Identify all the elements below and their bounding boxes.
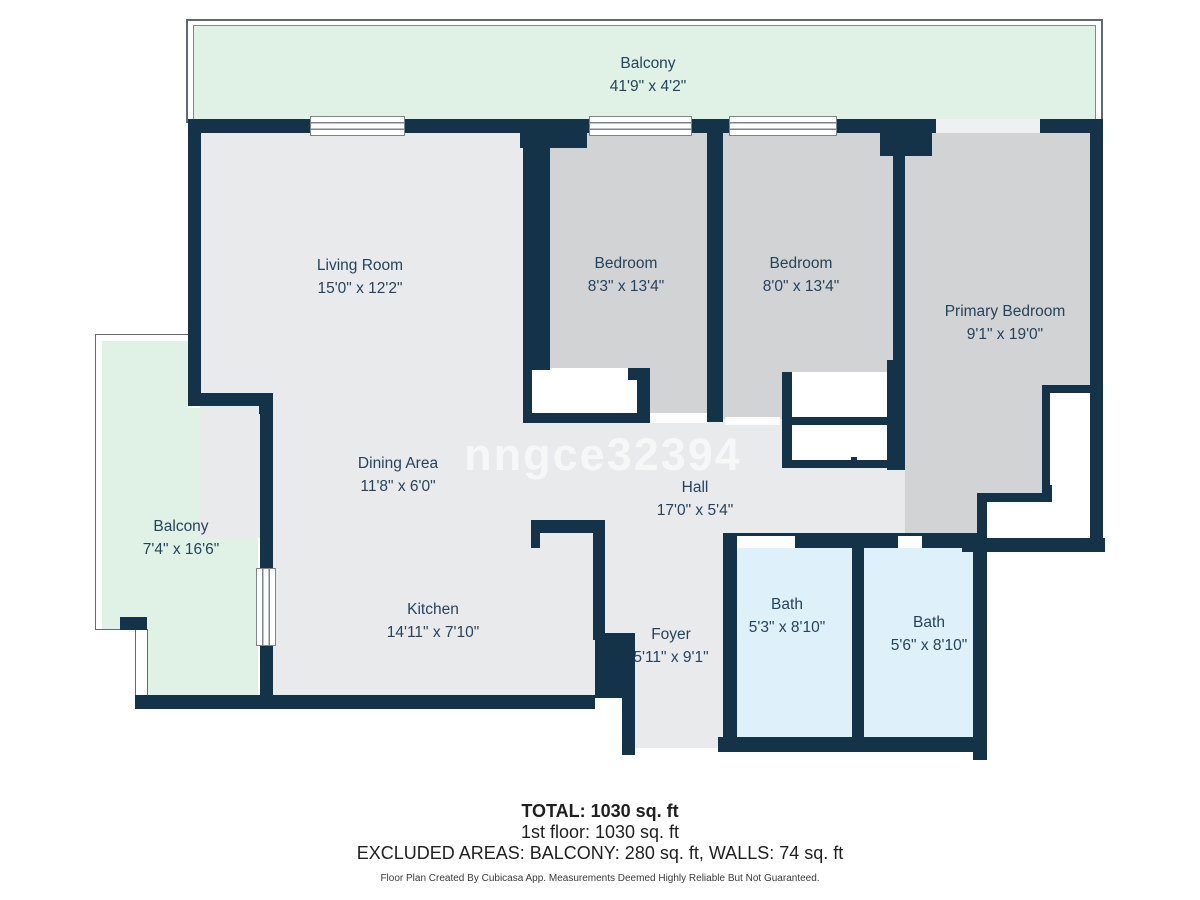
wall bbox=[977, 493, 1043, 502]
wall bbox=[880, 119, 932, 156]
primary-window-opening bbox=[936, 119, 1040, 133]
door-opening bbox=[725, 417, 780, 425]
balcony-left-railing bbox=[147, 629, 148, 697]
bath1-floor bbox=[737, 548, 852, 737]
wall bbox=[595, 633, 635, 698]
room-name: Dining Area bbox=[358, 452, 438, 475]
room-dims: 11'8" x 6'0" bbox=[358, 475, 438, 498]
wall bbox=[1042, 485, 1052, 502]
hall-floor bbox=[605, 533, 637, 645]
room-name: Living Room bbox=[317, 254, 403, 277]
wall bbox=[852, 548, 864, 738]
summary-excluded: EXCLUDED AREAS: BALCONY: 280 sq. ft, WAL… bbox=[0, 843, 1200, 864]
room-dims: 14'11" x 7'10" bbox=[387, 621, 479, 644]
room-label-primary-bedroom: Primary Bedroom 9'1" x 19'0" bbox=[945, 300, 1066, 346]
room-name: Bath bbox=[749, 593, 825, 616]
room-dims: 8'3" x 13'4" bbox=[588, 275, 664, 298]
room-dims: 5'11" x 9'1" bbox=[633, 646, 708, 669]
primary-vestibule bbox=[987, 502, 1093, 538]
room-dims: 8'0" x 13'4" bbox=[763, 275, 839, 298]
wall bbox=[523, 148, 550, 370]
wall bbox=[1090, 119, 1103, 552]
room-label-foyer: Foyer 5'11" x 9'1" bbox=[633, 623, 708, 669]
room-dims: 5'3" x 8'10" bbox=[749, 616, 825, 639]
wall bbox=[260, 406, 273, 572]
wall bbox=[593, 520, 605, 640]
summary-block: TOTAL: 1030 sq. ft 1st floor: 1030 sq. f… bbox=[0, 801, 1200, 885]
room-label-bedroom-1: Bedroom 8'3" x 13'4" bbox=[588, 252, 664, 298]
window bbox=[310, 116, 405, 136]
wall bbox=[622, 695, 635, 755]
wall bbox=[531, 520, 540, 548]
room-name: Foyer bbox=[633, 623, 708, 646]
room-label-bath-2: Bath 5'6" x 8'10" bbox=[891, 611, 967, 657]
room-label-dining-area: Dining Area 11'8" x 6'0" bbox=[358, 452, 438, 498]
room-label-hall: Hall 17'0" x 5'4" bbox=[657, 476, 733, 522]
wall bbox=[782, 417, 895, 425]
window bbox=[589, 116, 692, 136]
room-dims: 7'4" x 16'6" bbox=[143, 538, 219, 561]
wall bbox=[531, 520, 605, 533]
wall bbox=[135, 695, 595, 709]
wall bbox=[188, 119, 201, 397]
primary-closet-passage bbox=[1052, 485, 1093, 504]
room-label-bath-1: Bath 5'3" x 8'10" bbox=[749, 593, 825, 639]
wall bbox=[260, 642, 273, 697]
summary-disclaimer: Floor Plan Created By Cubicasa App. Meas… bbox=[0, 873, 1200, 885]
balcony-left-railing bbox=[135, 629, 136, 697]
wall bbox=[120, 617, 147, 630]
floor-plan: Balcony 41'9" x 4'2" Living Room 15'0" x… bbox=[0, 0, 1200, 900]
window bbox=[729, 116, 837, 136]
wall bbox=[782, 460, 895, 468]
room-label-kitchen: Kitchen 14'11" x 7'10" bbox=[387, 598, 479, 644]
door-opening bbox=[737, 536, 795, 548]
balcony-left-railing bbox=[95, 334, 96, 630]
watermark: nngce32394 bbox=[464, 429, 742, 481]
room-name: Bedroom bbox=[763, 252, 839, 275]
primary-closet bbox=[1050, 393, 1090, 488]
bedroom1-closet bbox=[532, 368, 637, 413]
wall bbox=[1042, 385, 1050, 497]
room-dims: 17'0" x 5'4" bbox=[657, 499, 733, 522]
door-opening bbox=[650, 413, 707, 423]
room-name: Balcony bbox=[143, 515, 219, 538]
wall bbox=[707, 119, 723, 422]
wall bbox=[520, 119, 587, 148]
bedroom2-floor bbox=[723, 373, 782, 419]
door-opening bbox=[898, 536, 922, 548]
wall bbox=[851, 457, 857, 468]
room-name: Bath bbox=[891, 611, 967, 634]
room-name: Balcony bbox=[610, 52, 686, 75]
bedroom2-closet-upper bbox=[792, 372, 887, 417]
room-name: Bedroom bbox=[588, 252, 664, 275]
wall bbox=[887, 360, 900, 470]
summary-total: TOTAL: 1030 sq. ft bbox=[0, 801, 1200, 822]
room-label-bedroom-2: Bedroom 8'0" x 13'4" bbox=[763, 252, 839, 298]
wall bbox=[628, 368, 647, 380]
room-dims: 5'6" x 8'10" bbox=[891, 634, 967, 657]
wall bbox=[723, 548, 737, 738]
room-dims: 15'0" x 12'2" bbox=[317, 277, 403, 300]
balcony-left-railing bbox=[95, 334, 189, 335]
room-name: Kitchen bbox=[387, 598, 479, 621]
bedroom2-closet-lower bbox=[792, 425, 887, 460]
window bbox=[256, 568, 276, 646]
wall bbox=[523, 413, 650, 423]
wall bbox=[718, 737, 987, 752]
wall bbox=[973, 538, 987, 760]
room-label-balcony-left: Balcony 7'4" x 16'6" bbox=[143, 515, 219, 561]
room-name: Primary Bedroom bbox=[945, 300, 1066, 323]
room-label-living-room: Living Room 15'0" x 12'2" bbox=[317, 254, 403, 300]
room-dims: 41'9" x 4'2" bbox=[610, 75, 686, 98]
room-label-balcony-top: Balcony 41'9" x 4'2" bbox=[610, 52, 686, 98]
room-dims: 9'1" x 19'0" bbox=[945, 323, 1066, 346]
summary-floor1: 1st floor: 1030 sq. ft bbox=[0, 822, 1200, 843]
wall bbox=[962, 538, 1105, 552]
wall bbox=[1042, 385, 1090, 393]
